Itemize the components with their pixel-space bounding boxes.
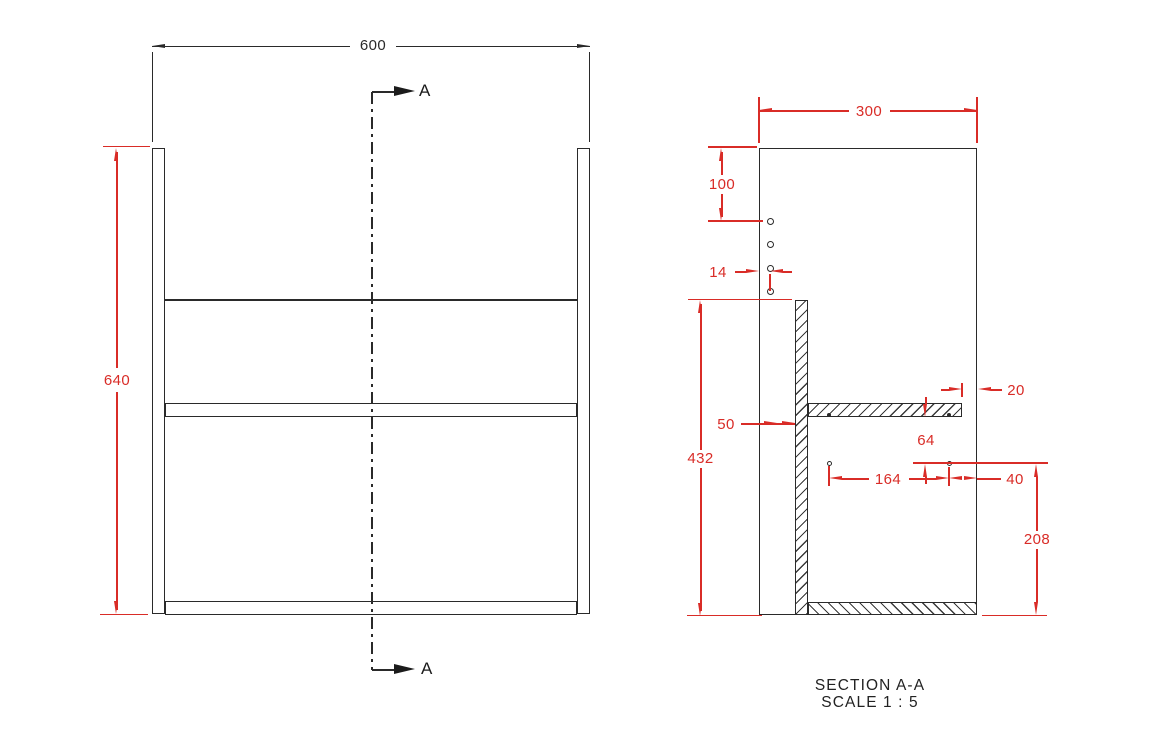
- dim-14-extension: [769, 274, 770, 291]
- dim-600-line-left: [152, 46, 350, 47]
- dim-164-label: 164: [867, 472, 909, 487]
- dim-100-arrow-down: [719, 208, 723, 221]
- dim-432-arrow-up: [698, 300, 702, 313]
- shelf-dowel-dot-left: [827, 413, 831, 417]
- dim-50-arrow-2: [782, 421, 795, 425]
- section-marker-bottom-arrow: [394, 664, 415, 674]
- dim-600-extension-right: [589, 52, 590, 142]
- dim-300-arrow-right: [964, 108, 977, 112]
- dim-208-label: 208: [1019, 532, 1055, 547]
- dim-14-label: 14: [703, 265, 733, 280]
- dim-432-line-upper: [700, 304, 701, 450]
- dim-100-label: 100: [704, 177, 740, 192]
- dim-600-extension-left: [152, 52, 153, 142]
- dim-64-arrow-up: [923, 464, 927, 477]
- dim-600-label: 600: [350, 38, 396, 53]
- dim-432-line-lower: [700, 468, 701, 611]
- dim-432-extension-top: [688, 299, 792, 300]
- dim-208-line-lower: [1036, 549, 1037, 602]
- section-title: SECTION A-A: [770, 678, 970, 694]
- dim-640-arrow-up: [114, 148, 118, 161]
- dim-432-label: 432: [683, 451, 718, 466]
- section-marker-top-line: [372, 91, 396, 93]
- dim-640-line-upper: [116, 152, 117, 368]
- dim-50-arrow-1: [764, 421, 777, 425]
- section-marker-top-label: A: [419, 82, 430, 99]
- dim-640-line-lower: [116, 392, 117, 610]
- dim-600-arrow-right: [577, 44, 590, 48]
- front-left-side-panel: [152, 148, 165, 614]
- dim-100-extension-bottom: [708, 220, 763, 221]
- dim-164-arrow-left: [829, 476, 842, 480]
- dim-432-arrow-down: [698, 603, 702, 616]
- dim-64-arrow-down: [923, 404, 927, 417]
- dim-208-arrow-down: [1034, 602, 1038, 615]
- dim-640-extension-top: [103, 146, 150, 147]
- dim-14-leader: [735, 271, 746, 272]
- dim-208-extension-bottom: [982, 615, 1047, 616]
- dim-64-label: 64: [909, 433, 943, 448]
- dim-40-label: 40: [1001, 472, 1029, 487]
- hole-reference-line: [913, 462, 1048, 463]
- dim-40-tail: [977, 478, 1001, 479]
- dim-20-line-left: [941, 389, 949, 390]
- dim-600-arrow-left: [152, 44, 165, 48]
- section-marker-top-arrow: [394, 86, 415, 96]
- dim-20-arrow-left: [978, 387, 991, 391]
- dim-14-arrow-right: [746, 269, 759, 273]
- shelf-pin-hole-2: [767, 241, 774, 248]
- dim-40-arrow-left: [949, 476, 962, 480]
- dim-208-line-upper: [1036, 477, 1037, 531]
- section-back-panel-hatched: [795, 300, 808, 615]
- dim-20-label: 20: [1002, 383, 1030, 398]
- dim-640-label: 640: [99, 373, 135, 388]
- section-side-panel: [759, 148, 977, 615]
- dim-600-line-right: [396, 46, 590, 47]
- dim-300-arrow-left: [759, 108, 772, 112]
- dim-640-extension-bottom: [100, 614, 148, 615]
- dim-300-label: 300: [848, 104, 890, 119]
- dim-40-arrow-right: [964, 476, 977, 480]
- section-marker-bottom-label: A: [421, 660, 432, 677]
- dim-640-arrow-down: [114, 601, 118, 614]
- dim-300-extension-left: [758, 97, 759, 143]
- drawing-canvas: 600 640 A A: [0, 0, 1156, 742]
- dim-300-extension-right: [976, 97, 977, 143]
- dim-50-label: 50: [711, 417, 741, 432]
- shelf-pin-hole-1: [767, 218, 774, 225]
- section-scale: SCALE 1 : 5: [770, 695, 970, 711]
- dim-100-extension-top: [708, 146, 757, 147]
- section-bottom-panel-hatched: [808, 602, 977, 615]
- section-shelf-hatched: [808, 403, 962, 417]
- dim-300-line-left: [759, 110, 849, 111]
- dim-164-line-right: [909, 478, 936, 479]
- dim-100-arrow-up: [719, 148, 723, 161]
- shelf-dowel-dot-right: [947, 413, 951, 417]
- bottom-hole-left: [827, 461, 832, 466]
- section-marker-bottom-line: [372, 669, 396, 671]
- dim-14-arrow-left: [770, 269, 783, 273]
- dim-208-arrow-up: [1034, 464, 1038, 477]
- dim-164-arrow-right: [936, 476, 949, 480]
- dim-14-tail: [783, 271, 792, 272]
- front-right-side-panel: [577, 148, 590, 614]
- dim-164-line-left: [842, 478, 869, 479]
- dim-64-line-upper: [925, 397, 926, 404]
- section-cut-centerline: [371, 92, 373, 670]
- dim-20-arrow-right: [949, 387, 962, 391]
- dim-20-tail: [991, 389, 1002, 390]
